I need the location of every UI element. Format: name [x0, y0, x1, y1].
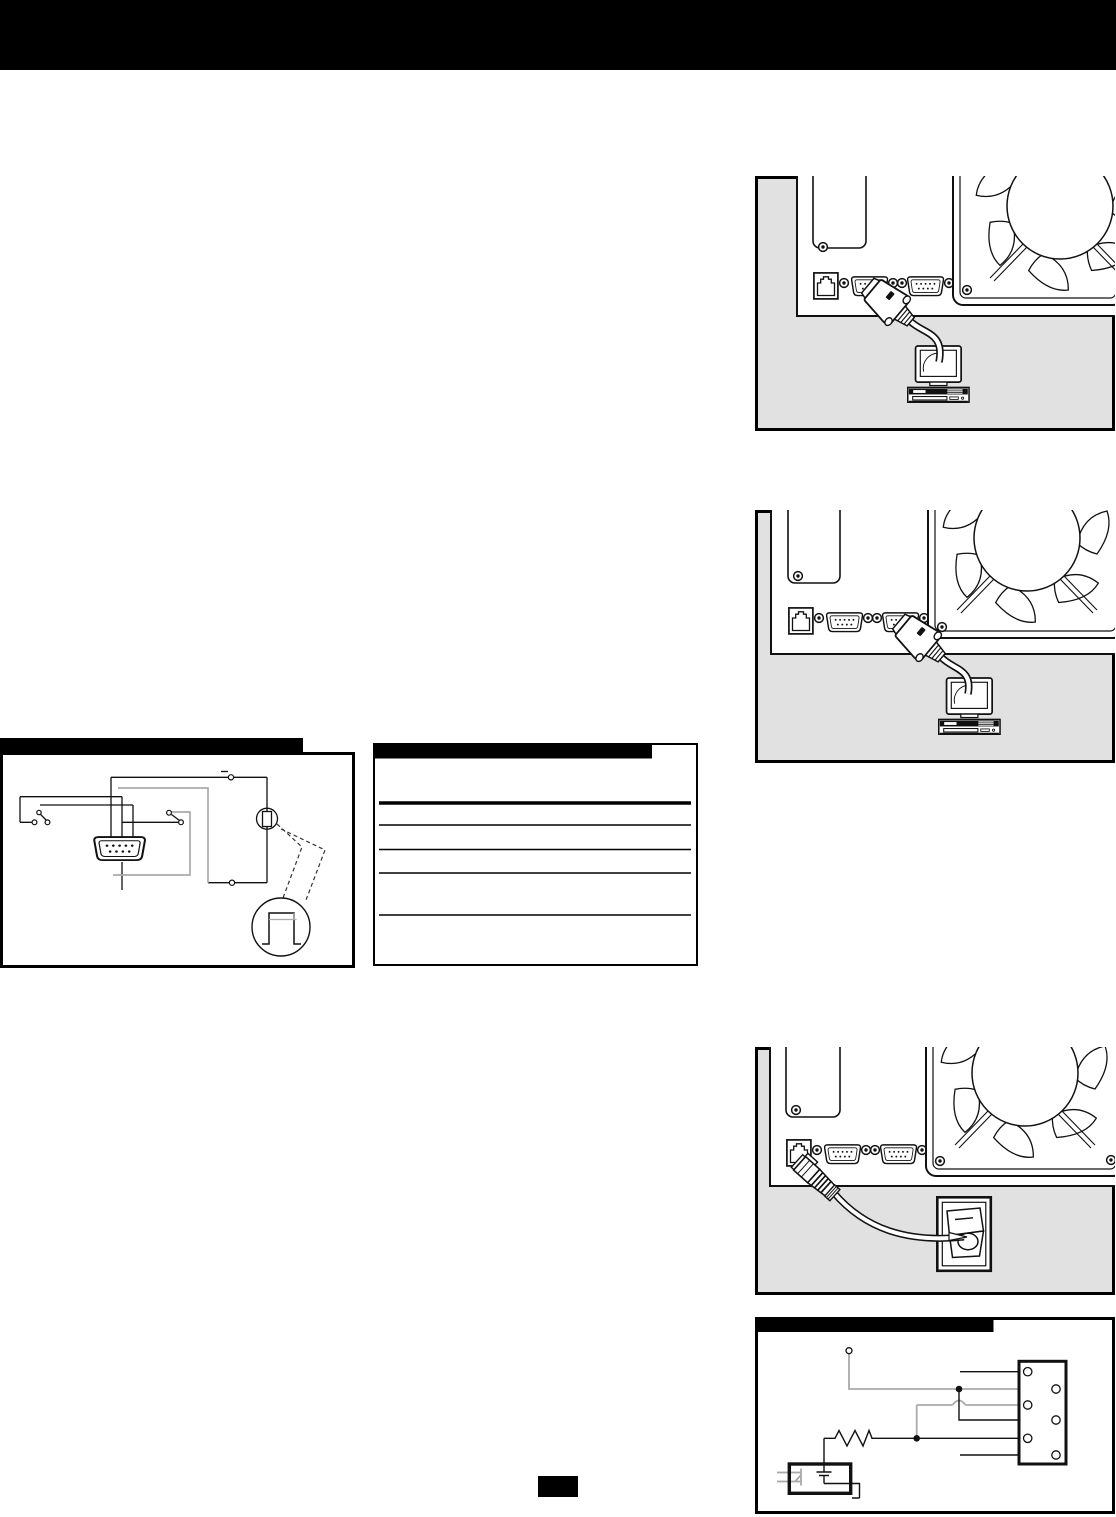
- db9-connector-icon: [94, 837, 145, 860]
- figure-frame: [374, 744, 697, 965]
- figure-switch-schematic: [755, 1317, 1115, 1514]
- figure-pin-table: [373, 743, 698, 966]
- db9-port-1-icon: [825, 1145, 861, 1164]
- rj45-jack-icon: [814, 273, 838, 299]
- terminal: [846, 1348, 852, 1354]
- rj45-jack-icon: [789, 608, 813, 634]
- figure-header-bar: [757, 1317, 994, 1332]
- figure-header-bar: [0, 738, 303, 755]
- db9-port-2-icon: [881, 1145, 917, 1164]
- jack-plug-icon: [257, 808, 278, 829]
- cooling-fan-icon: [926, 1047, 1115, 1176]
- figure-header-bar: [373, 743, 652, 759]
- junction-dot: [913, 1435, 920, 1442]
- rocker-switch-icon: [937, 1197, 991, 1271]
- top-banner: [0, 0, 1116, 70]
- junction-dot: [956, 1386, 963, 1393]
- page-number-block: [538, 1476, 578, 1497]
- card-slot: [813, 176, 866, 248]
- figure-remote-switch: [755, 1047, 1115, 1295]
- db9-port-1-icon: [827, 613, 863, 632]
- cooling-fan-icon: [928, 510, 1115, 638]
- figure-serial-port-2: [755, 510, 1115, 763]
- db9-port-2-icon: [908, 277, 944, 296]
- terminal-block: [1019, 1361, 1066, 1464]
- document-page: [0, 0, 1116, 1517]
- cooling-fan-icon: [953, 176, 1115, 305]
- figure-serial-port-1: [755, 176, 1115, 431]
- magnified-plug-detail: [252, 898, 310, 956]
- figure-wiring-diagram: [0, 738, 356, 969]
